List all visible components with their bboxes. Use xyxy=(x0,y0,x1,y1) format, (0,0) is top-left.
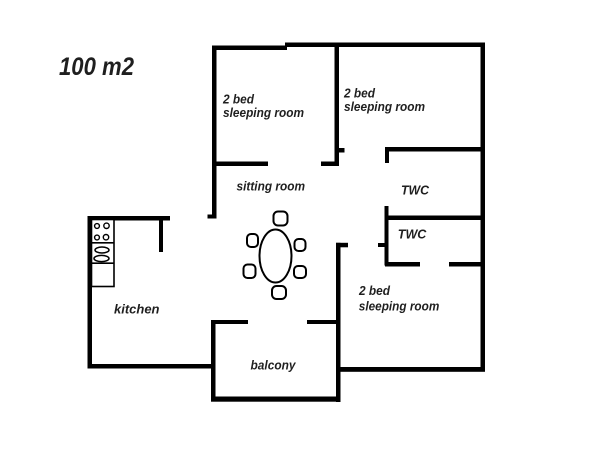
svg-text:kitchen: kitchen xyxy=(114,301,160,316)
svg-text:sleeping room: sleeping room xyxy=(223,105,304,120)
svg-text:TWC: TWC xyxy=(398,227,427,242)
svg-text:2 bed: 2 bed xyxy=(358,283,391,298)
svg-text:sleeping room: sleeping room xyxy=(344,99,425,114)
svg-text:balcony: balcony xyxy=(251,357,297,372)
svg-text:TWC: TWC xyxy=(401,183,430,198)
svg-text:sleeping room: sleeping room xyxy=(359,299,440,314)
svg-text:sitting room: sitting room xyxy=(237,179,306,194)
svg-text:100 m2: 100 m2 xyxy=(59,53,134,81)
